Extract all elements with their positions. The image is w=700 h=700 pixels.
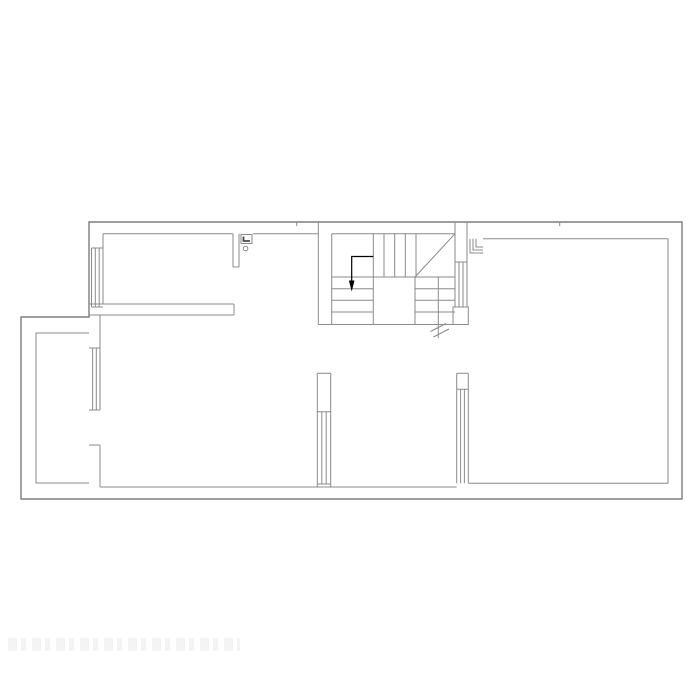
door-frame-icon-right bbox=[470, 239, 483, 253]
stair-pier bbox=[453, 307, 468, 325]
stair-direction-arrow bbox=[349, 257, 373, 292]
window-bottom-right-pier bbox=[457, 373, 469, 483]
annex-inner-outline bbox=[36, 333, 89, 483]
window-lower-left-wall bbox=[89, 348, 100, 410]
inner-wall-faces bbox=[89, 234, 668, 487]
stair-diagonal-line bbox=[415, 234, 455, 277]
window-top-left-wall bbox=[92, 248, 104, 307]
stair-steps bbox=[332, 234, 455, 325]
window-stair-right-wall bbox=[455, 262, 467, 307]
window-bottom-left-pier bbox=[317, 373, 330, 487]
floor-plan-drawing bbox=[0, 0, 700, 700]
stair-break-line bbox=[431, 277, 450, 338]
room-topleft-walls bbox=[89, 234, 239, 315]
watermark-text bbox=[8, 638, 240, 651]
floor-plan-canvas bbox=[0, 0, 700, 700]
door-frame-icon bbox=[241, 235, 252, 251]
door-pivot-circle bbox=[243, 246, 248, 251]
staircase-walls bbox=[318, 222, 468, 325]
